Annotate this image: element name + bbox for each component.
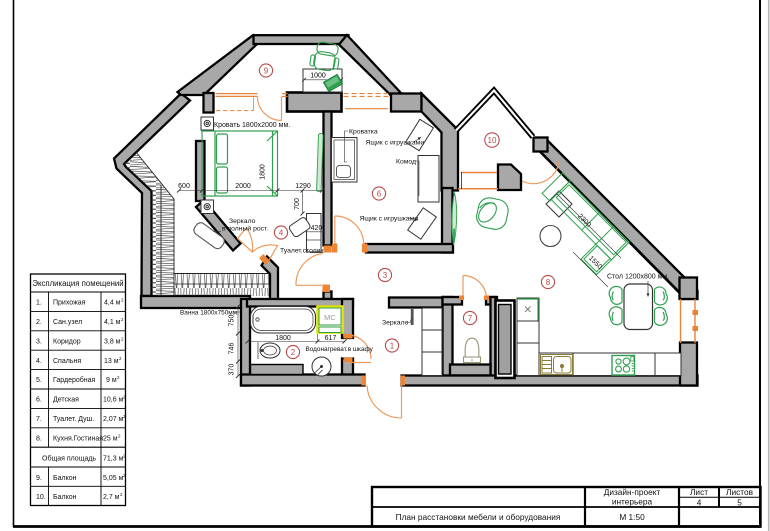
svg-text:2,7 м: 2,7 м bbox=[103, 494, 120, 501]
svg-text:1.: 1. bbox=[36, 300, 42, 307]
svg-text:Стол 1200х800 мм.: Стол 1200х800 мм. bbox=[607, 274, 669, 281]
svg-text:Кровать 1800х2000 мм.: Кровать 1800х2000 мм. bbox=[214, 122, 290, 129]
svg-text:Листов: Листов bbox=[726, 487, 754, 497]
svg-text:10,6 м: 10,6 м bbox=[103, 397, 124, 404]
svg-text:13 м: 13 м bbox=[104, 358, 119, 365]
svg-text:МС: МС bbox=[324, 313, 336, 322]
svg-text:Туалет.столик: Туалет.столик bbox=[280, 248, 323, 255]
svg-text:Кроватка: Кроватка bbox=[349, 129, 378, 136]
svg-text:5.: 5. bbox=[36, 377, 42, 384]
svg-text:9.: 9. bbox=[36, 475, 42, 482]
svg-text:Прихожая: Прихожая bbox=[53, 300, 86, 307]
svg-text:600: 600 bbox=[178, 183, 190, 190]
svg-text:3.: 3. bbox=[36, 338, 42, 345]
svg-text:1800: 1800 bbox=[260, 164, 267, 180]
svg-text:Сан.узел: Сан.узел bbox=[53, 319, 82, 326]
svg-text:Гардеробная: Гардеробная bbox=[53, 376, 96, 384]
svg-text:71,3 м: 71,3 м bbox=[103, 456, 124, 463]
svg-text:5: 5 bbox=[737, 498, 742, 508]
svg-text:9 м: 9 м bbox=[106, 377, 117, 384]
svg-text:9: 9 bbox=[264, 67, 269, 76]
svg-text:5,05 м: 5,05 м bbox=[103, 475, 124, 482]
svg-text:1800: 1800 bbox=[275, 335, 291, 342]
svg-text:Зеркало: Зеркало bbox=[382, 320, 409, 327]
svg-text:Зеркало: Зеркало bbox=[229, 218, 256, 225]
svg-text:4,4 м: 4,4 м bbox=[104, 300, 121, 307]
svg-text:Кухня.Гостиная: Кухня.Гостиная bbox=[53, 435, 103, 442]
svg-text:Лист: Лист bbox=[690, 487, 708, 497]
svg-text:Ящик с игрушками: Ящик с игрушками bbox=[360, 216, 419, 223]
svg-text:746: 746 bbox=[229, 343, 236, 355]
svg-text:25 м: 25 м bbox=[103, 435, 118, 442]
svg-text:Балкон: Балкон bbox=[53, 475, 77, 482]
svg-text:617: 617 bbox=[325, 335, 337, 342]
svg-text:700: 700 bbox=[294, 198, 301, 210]
svg-text:2: 2 bbox=[291, 348, 296, 357]
svg-text:Общая площадь: Общая площадь bbox=[42, 455, 96, 463]
svg-text:Водонагреват.в шкафу: Водонагреват.в шкафу bbox=[306, 346, 374, 353]
svg-text:7: 7 bbox=[468, 314, 473, 323]
svg-text:7.: 7. bbox=[36, 416, 42, 423]
svg-text:6: 6 bbox=[377, 190, 382, 199]
svg-text:в полный рост.: в полный рост. bbox=[222, 225, 268, 233]
svg-text:Детская: Детская bbox=[53, 397, 79, 404]
svg-text:Ванна 1800х750мм.: Ванна 1800х750мм. bbox=[180, 310, 239, 317]
svg-text:2000: 2000 bbox=[235, 183, 251, 190]
svg-text:4: 4 bbox=[279, 229, 284, 238]
svg-text:Коридор: Коридор bbox=[53, 338, 81, 345]
svg-text:интерьера: интерьера bbox=[612, 497, 653, 507]
svg-text:1: 1 bbox=[390, 342, 395, 351]
svg-text:4.: 4. bbox=[36, 358, 42, 365]
svg-text:2.: 2. bbox=[36, 319, 42, 326]
svg-text:4,1 м: 4,1 м bbox=[104, 319, 121, 326]
svg-text:3: 3 bbox=[383, 271, 388, 280]
svg-text:6.: 6. bbox=[36, 397, 42, 404]
svg-text:Дизайн-проект: Дизайн-проект bbox=[604, 487, 661, 497]
svg-text:4: 4 bbox=[697, 498, 702, 508]
svg-text:10.: 10. bbox=[36, 494, 46, 501]
svg-text:План расстановки мебели и обор: План расстановки мебели и оборудования bbox=[396, 512, 561, 522]
svg-text:Балкон: Балкон bbox=[53, 494, 77, 501]
svg-text:Комод: Комод bbox=[396, 159, 416, 166]
svg-text:10: 10 bbox=[488, 136, 497, 145]
svg-text:8.: 8. bbox=[36, 435, 42, 442]
svg-text:Туалет. Душ.: Туалет. Душ. bbox=[53, 416, 94, 423]
svg-text:8: 8 bbox=[546, 278, 551, 287]
svg-text:Спальня: Спальня bbox=[53, 358, 81, 365]
svg-text:370: 370 bbox=[229, 364, 236, 376]
svg-text:1290: 1290 bbox=[295, 183, 311, 190]
svg-text:М 1:50: М 1:50 bbox=[619, 512, 645, 522]
svg-text:1000: 1000 bbox=[310, 73, 326, 80]
svg-text:420: 420 bbox=[311, 225, 323, 232]
svg-text:Экспликация помещений: Экспликация помещений bbox=[32, 279, 123, 288]
svg-text:2,07 м: 2,07 м bbox=[103, 416, 124, 423]
svg-text:3,8 м: 3,8 м bbox=[104, 338, 121, 345]
